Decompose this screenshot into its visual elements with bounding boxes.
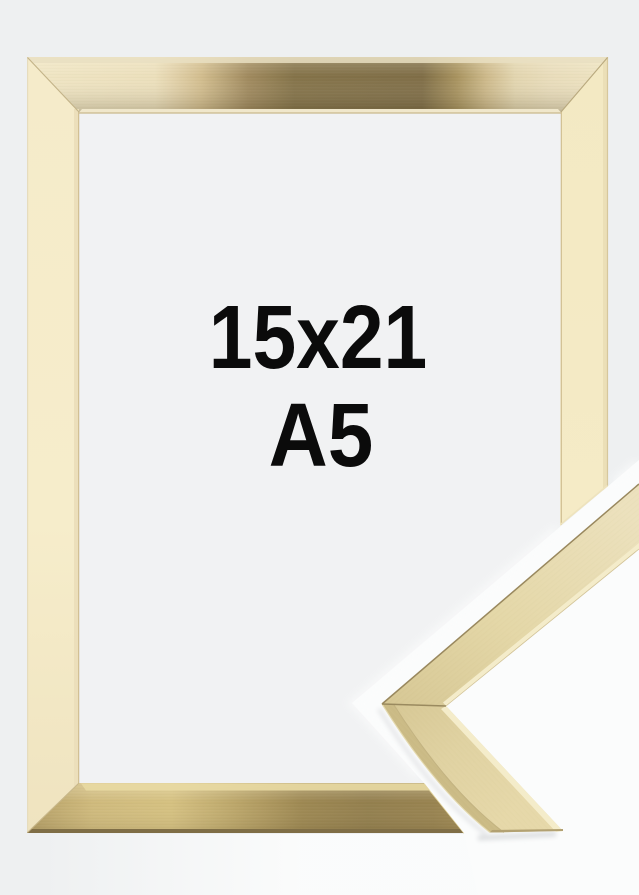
svg-text:A5: A5: [269, 385, 374, 485]
svg-text:15x21: 15x21: [209, 287, 427, 387]
